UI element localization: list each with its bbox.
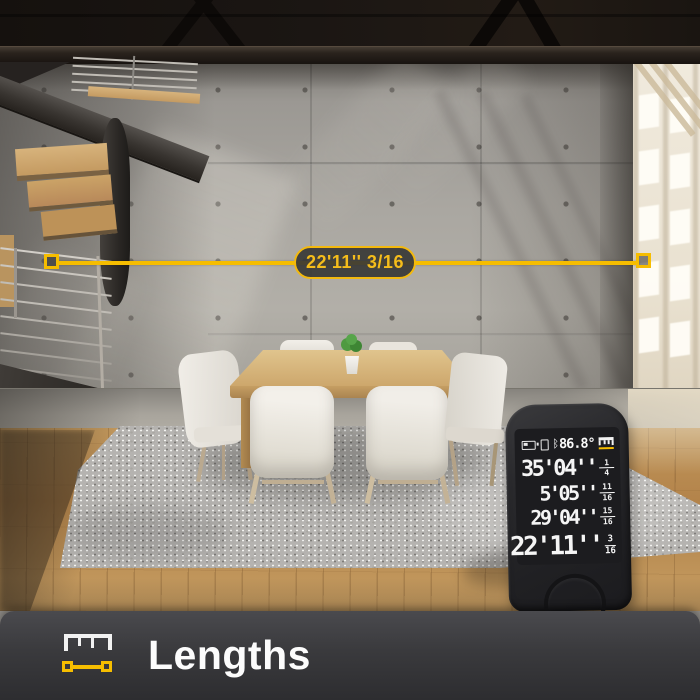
fraction: 316 <box>605 534 616 556</box>
caption-bar: Lengths <box>0 611 700 700</box>
curtain-fold <box>633 62 638 392</box>
measurement-history-row: 29'04'' 1516 <box>516 504 621 530</box>
measurement-label: 22'11'' 3/16 <box>306 252 404 273</box>
angle-readout: 86.8° <box>559 435 595 452</box>
promo-image: 22'11'' 3/16 ᛒ 86.8° 35'04 <box>0 0 700 700</box>
lengths-icon <box>64 634 112 678</box>
measure-endpoint-left <box>44 254 59 269</box>
room-photo: 22'11'' 3/16 ᛒ 86.8° 35'04 <box>0 0 700 611</box>
window-light <box>670 153 690 190</box>
fraction: 14 <box>599 458 614 478</box>
ceiling-brace <box>461 0 527 48</box>
curtain-fold <box>663 62 668 392</box>
wall-corner-shade <box>600 62 633 392</box>
window-curtain <box>633 62 700 392</box>
measurement-history-row: 5'05'' 1116 <box>515 480 620 506</box>
measurement-history-row: 35'04'' 14 <box>515 455 621 482</box>
window-floor-glow <box>628 389 700 474</box>
ceiling-brace <box>509 0 569 48</box>
window-light <box>639 93 659 130</box>
window-light <box>670 265 690 302</box>
window-light <box>639 149 659 186</box>
measure-endpoint-right <box>636 253 651 268</box>
ceiling <box>0 0 700 48</box>
device-measure-button <box>543 573 606 611</box>
device-screen: ᛒ 86.8° 35'04'' 14 5'05'' 1116 <box>514 427 622 565</box>
ceiling-joint <box>0 14 700 17</box>
window-light <box>670 209 690 246</box>
measurement-label-pill: 22'11'' 3/16 <box>294 246 416 279</box>
current-measurement-row: 22'11'' 316 <box>517 530 623 562</box>
fraction: 1116 <box>599 482 614 502</box>
ruler-icon <box>64 634 112 639</box>
reference-icon <box>541 439 549 450</box>
laser-measure-device: ᛒ 86.8° 35'04'' 14 5'05'' 1116 <box>505 403 632 611</box>
mode-highlight <box>599 447 614 450</box>
window-light <box>639 205 659 242</box>
window-light <box>670 321 690 358</box>
caption-label: Lengths <box>148 632 311 679</box>
battery-icon <box>522 440 536 449</box>
fraction: 1516 <box>600 506 615 526</box>
ruler-mode-icon <box>599 437 613 449</box>
window-light <box>639 317 659 354</box>
screen-status-bar: ᛒ 86.8° <box>522 435 613 453</box>
